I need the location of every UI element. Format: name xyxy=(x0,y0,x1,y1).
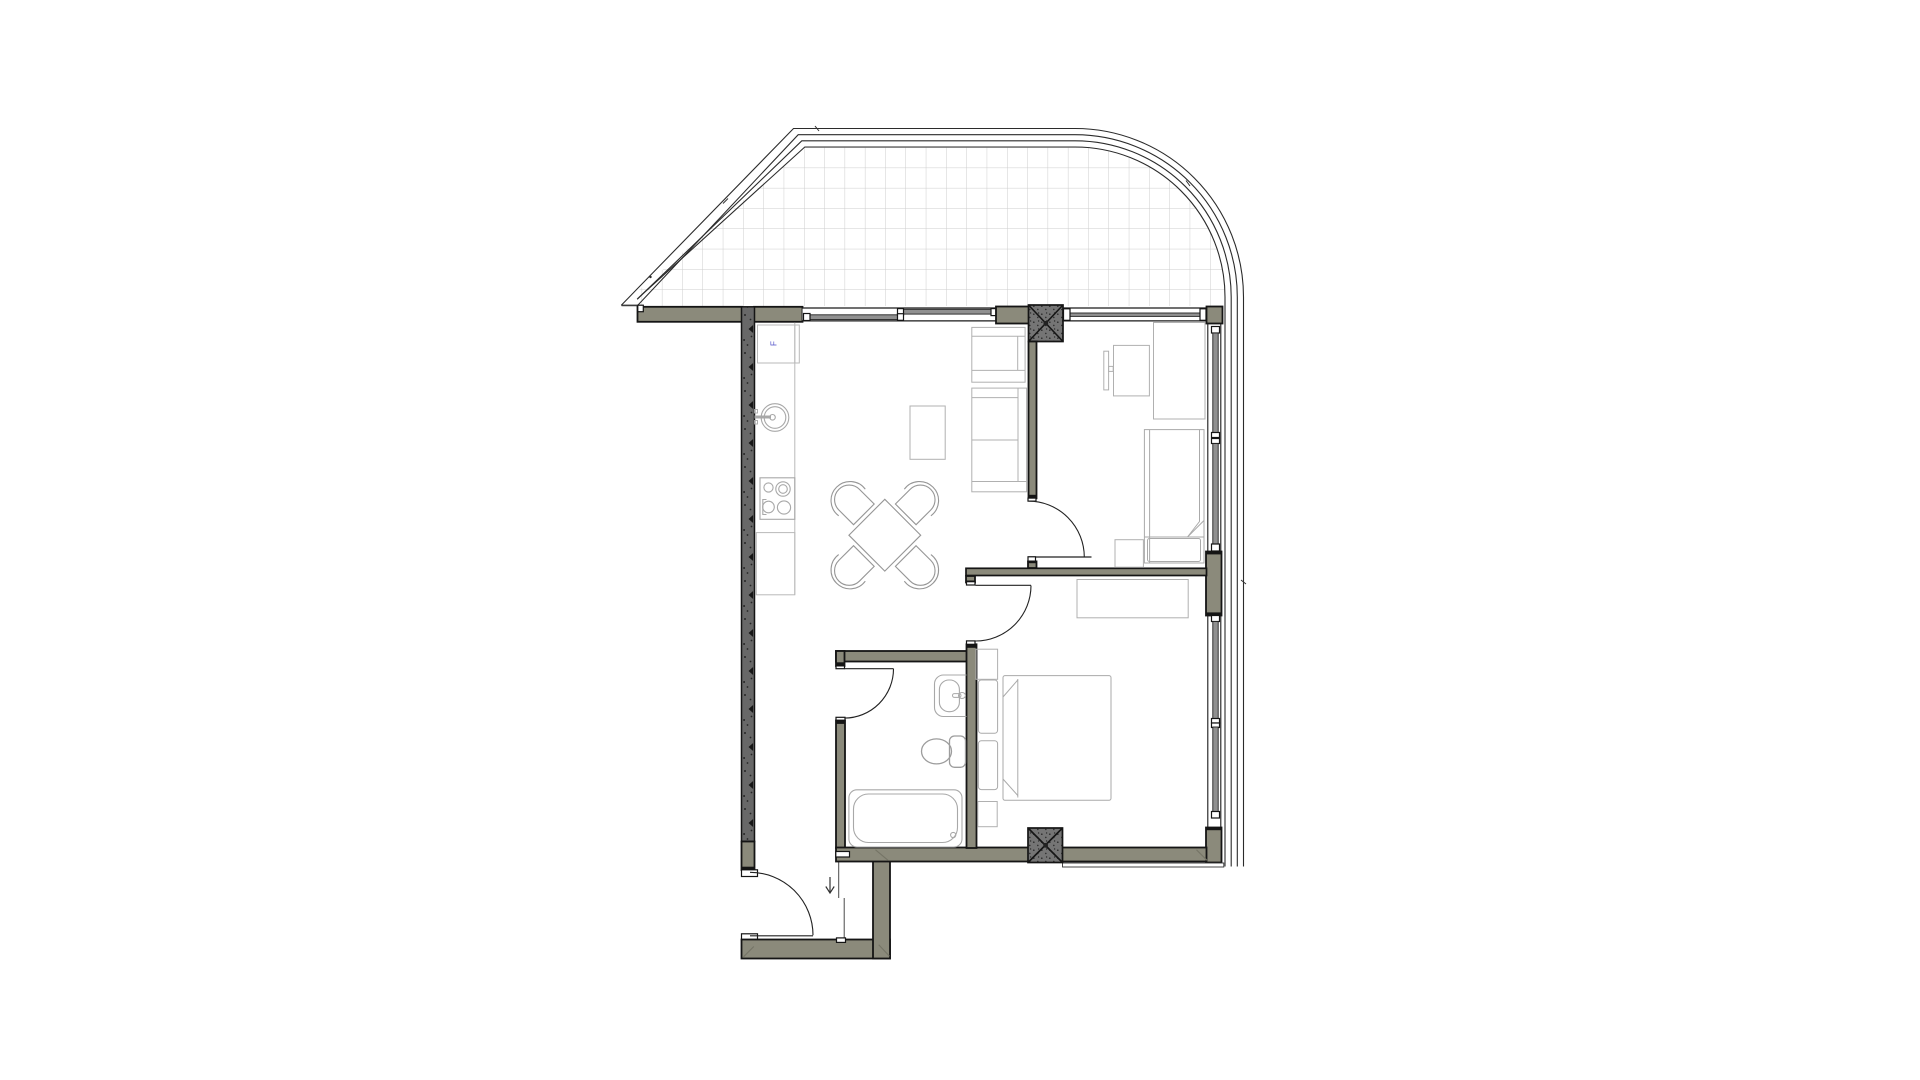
svg-text:F: F xyxy=(770,341,779,346)
